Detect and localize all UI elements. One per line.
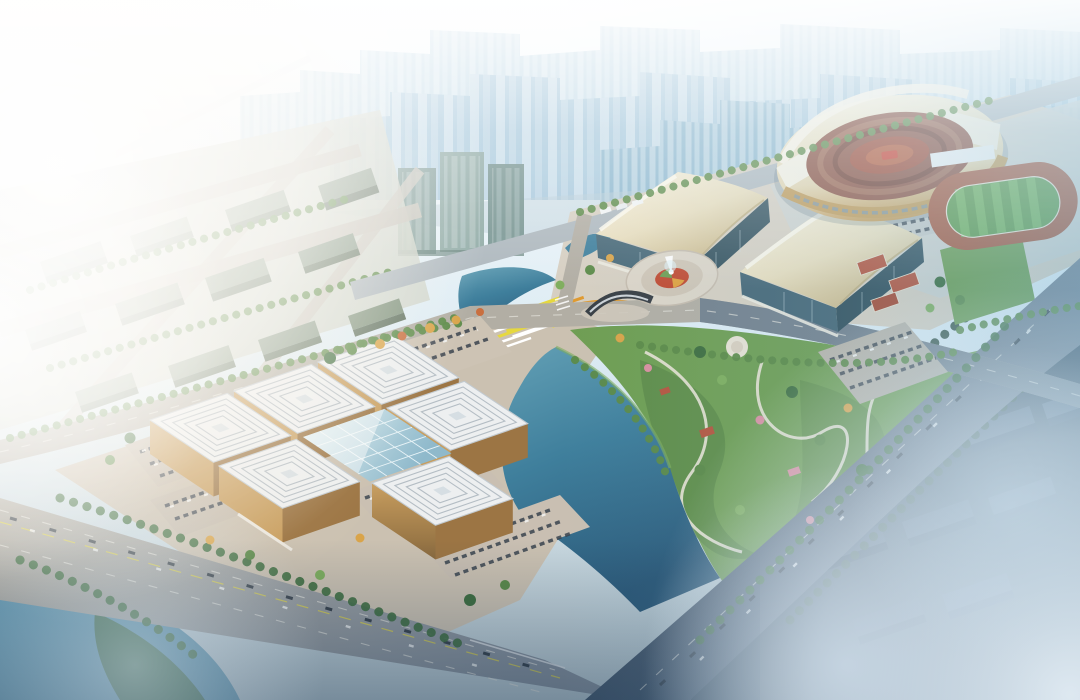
lake-mist <box>0 0 1080 700</box>
fog-and-sunlight <box>0 0 1080 700</box>
rendering-stage <box>0 0 1080 700</box>
aerial-rendering <box>0 0 1080 700</box>
